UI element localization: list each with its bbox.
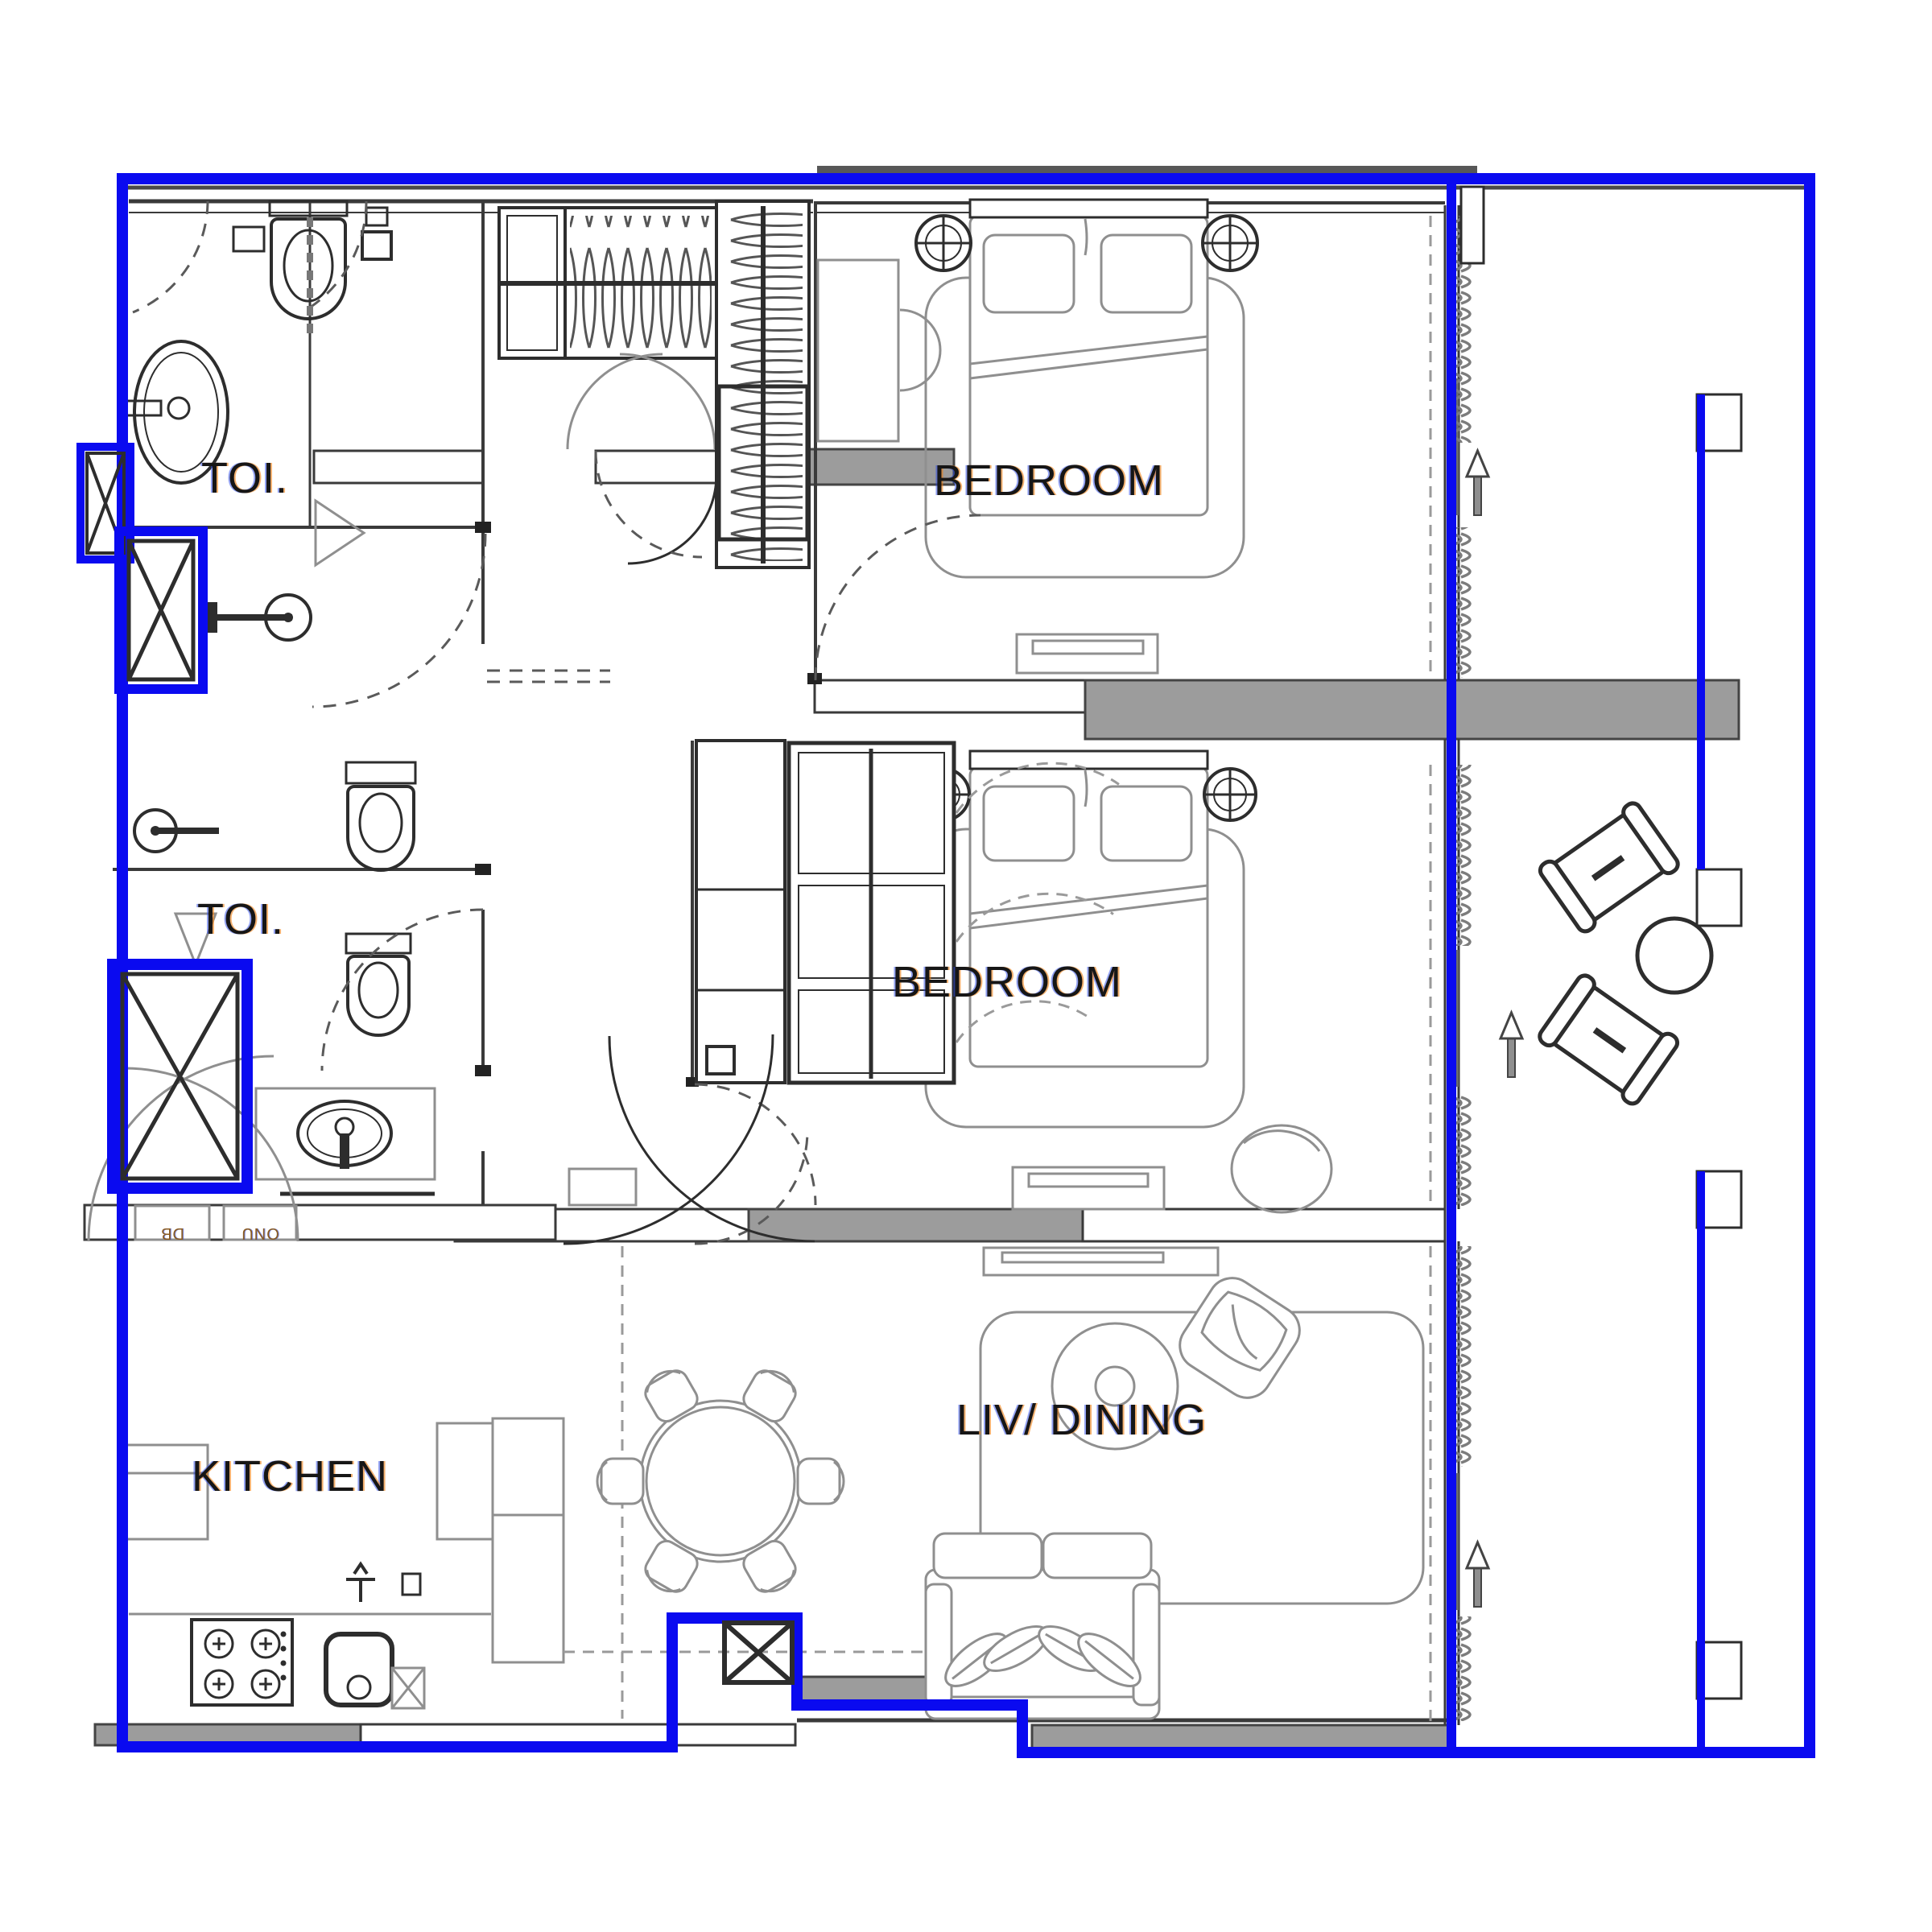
kitchen-label: KITCHEN: [192, 1452, 388, 1501]
door-swing: [312, 534, 485, 707]
bedroom2-label: BEDROOM: [892, 958, 1122, 1006]
floorplan-page: DB ONU: [0, 0, 1932, 1932]
bedside-lamp-icon: [1204, 769, 1256, 820]
window-tab: [1697, 869, 1741, 926]
balcony-table-icon: [1637, 919, 1711, 993]
gray-party-wall-living: [749, 1209, 1083, 1241]
door-swing: [568, 354, 663, 449]
headboard: [970, 200, 1207, 217]
shower-drain-icon: [316, 501, 364, 565]
bedroom1-label: BEDROOM: [934, 456, 1164, 505]
tall-cabinet: [437, 1423, 493, 1539]
wc-icon: [271, 219, 345, 319]
door-swing: [695, 1084, 815, 1205]
service-shaft-icon: [113, 964, 247, 1188]
onu-label: ONU: [241, 1224, 279, 1242]
sofa-icon: [926, 1534, 1159, 1719]
db-label: DB: [160, 1224, 184, 1242]
cabinet-column: [493, 1418, 563, 1662]
wc-cistern-icon: [346, 762, 415, 783]
balcony-chair-icon: [1537, 972, 1681, 1107]
headboard: [970, 751, 1207, 769]
cabinet: [696, 741, 785, 1083]
door-swing: [815, 515, 980, 680]
direction-arrow-icon: [1501, 1013, 1522, 1077]
bedroom1: [818, 200, 1257, 673]
balcony-chair-icon: [1538, 800, 1682, 935]
dining-table-icon: [597, 1363, 844, 1599]
living-dining-label: LIV/ DINING: [956, 1396, 1207, 1444]
wardrobe-corridor: [499, 201, 809, 568]
door-swing: [628, 475, 716, 563]
direction-arrow-icon: [1467, 1542, 1488, 1607]
gas-stove-icon: [192, 1620, 292, 1705]
floorplan-drawing: DB ONU: [0, 0, 1932, 1932]
wc-icon: [348, 786, 414, 870]
toilet2-label: TOI.: [197, 895, 284, 943]
side-cabinet: [569, 1169, 636, 1205]
desk-chair-icon: [900, 310, 940, 390]
wc-cistern-icon: [270, 201, 347, 216]
gray-party-wall-bedrooms: [1085, 680, 1739, 739]
armchair-icon: [1232, 1125, 1331, 1212]
window-tab: [1461, 187, 1484, 263]
balcony: [1467, 451, 1711, 1607]
wc-icon: [348, 956, 409, 1035]
wc-cistern-icon: [346, 934, 411, 953]
door-swing: [310, 201, 366, 308]
direction-arrow-icon: [1467, 451, 1488, 515]
toilet1-label: TOI.: [201, 454, 288, 502]
faucet-icon: [346, 1564, 375, 1602]
door-swing: [620, 354, 715, 449]
floor-trap: [392, 1668, 424, 1708]
door-swing: [133, 201, 208, 312]
gray-wall-bottom-living: [1032, 1725, 1449, 1749]
bedside-lamp-icon: [916, 216, 971, 270]
armchair-icon: [1170, 1269, 1309, 1407]
toilet1: [125, 201, 391, 483]
desk: [818, 260, 898, 441]
bedside-lamp-icon: [1203, 216, 1257, 270]
